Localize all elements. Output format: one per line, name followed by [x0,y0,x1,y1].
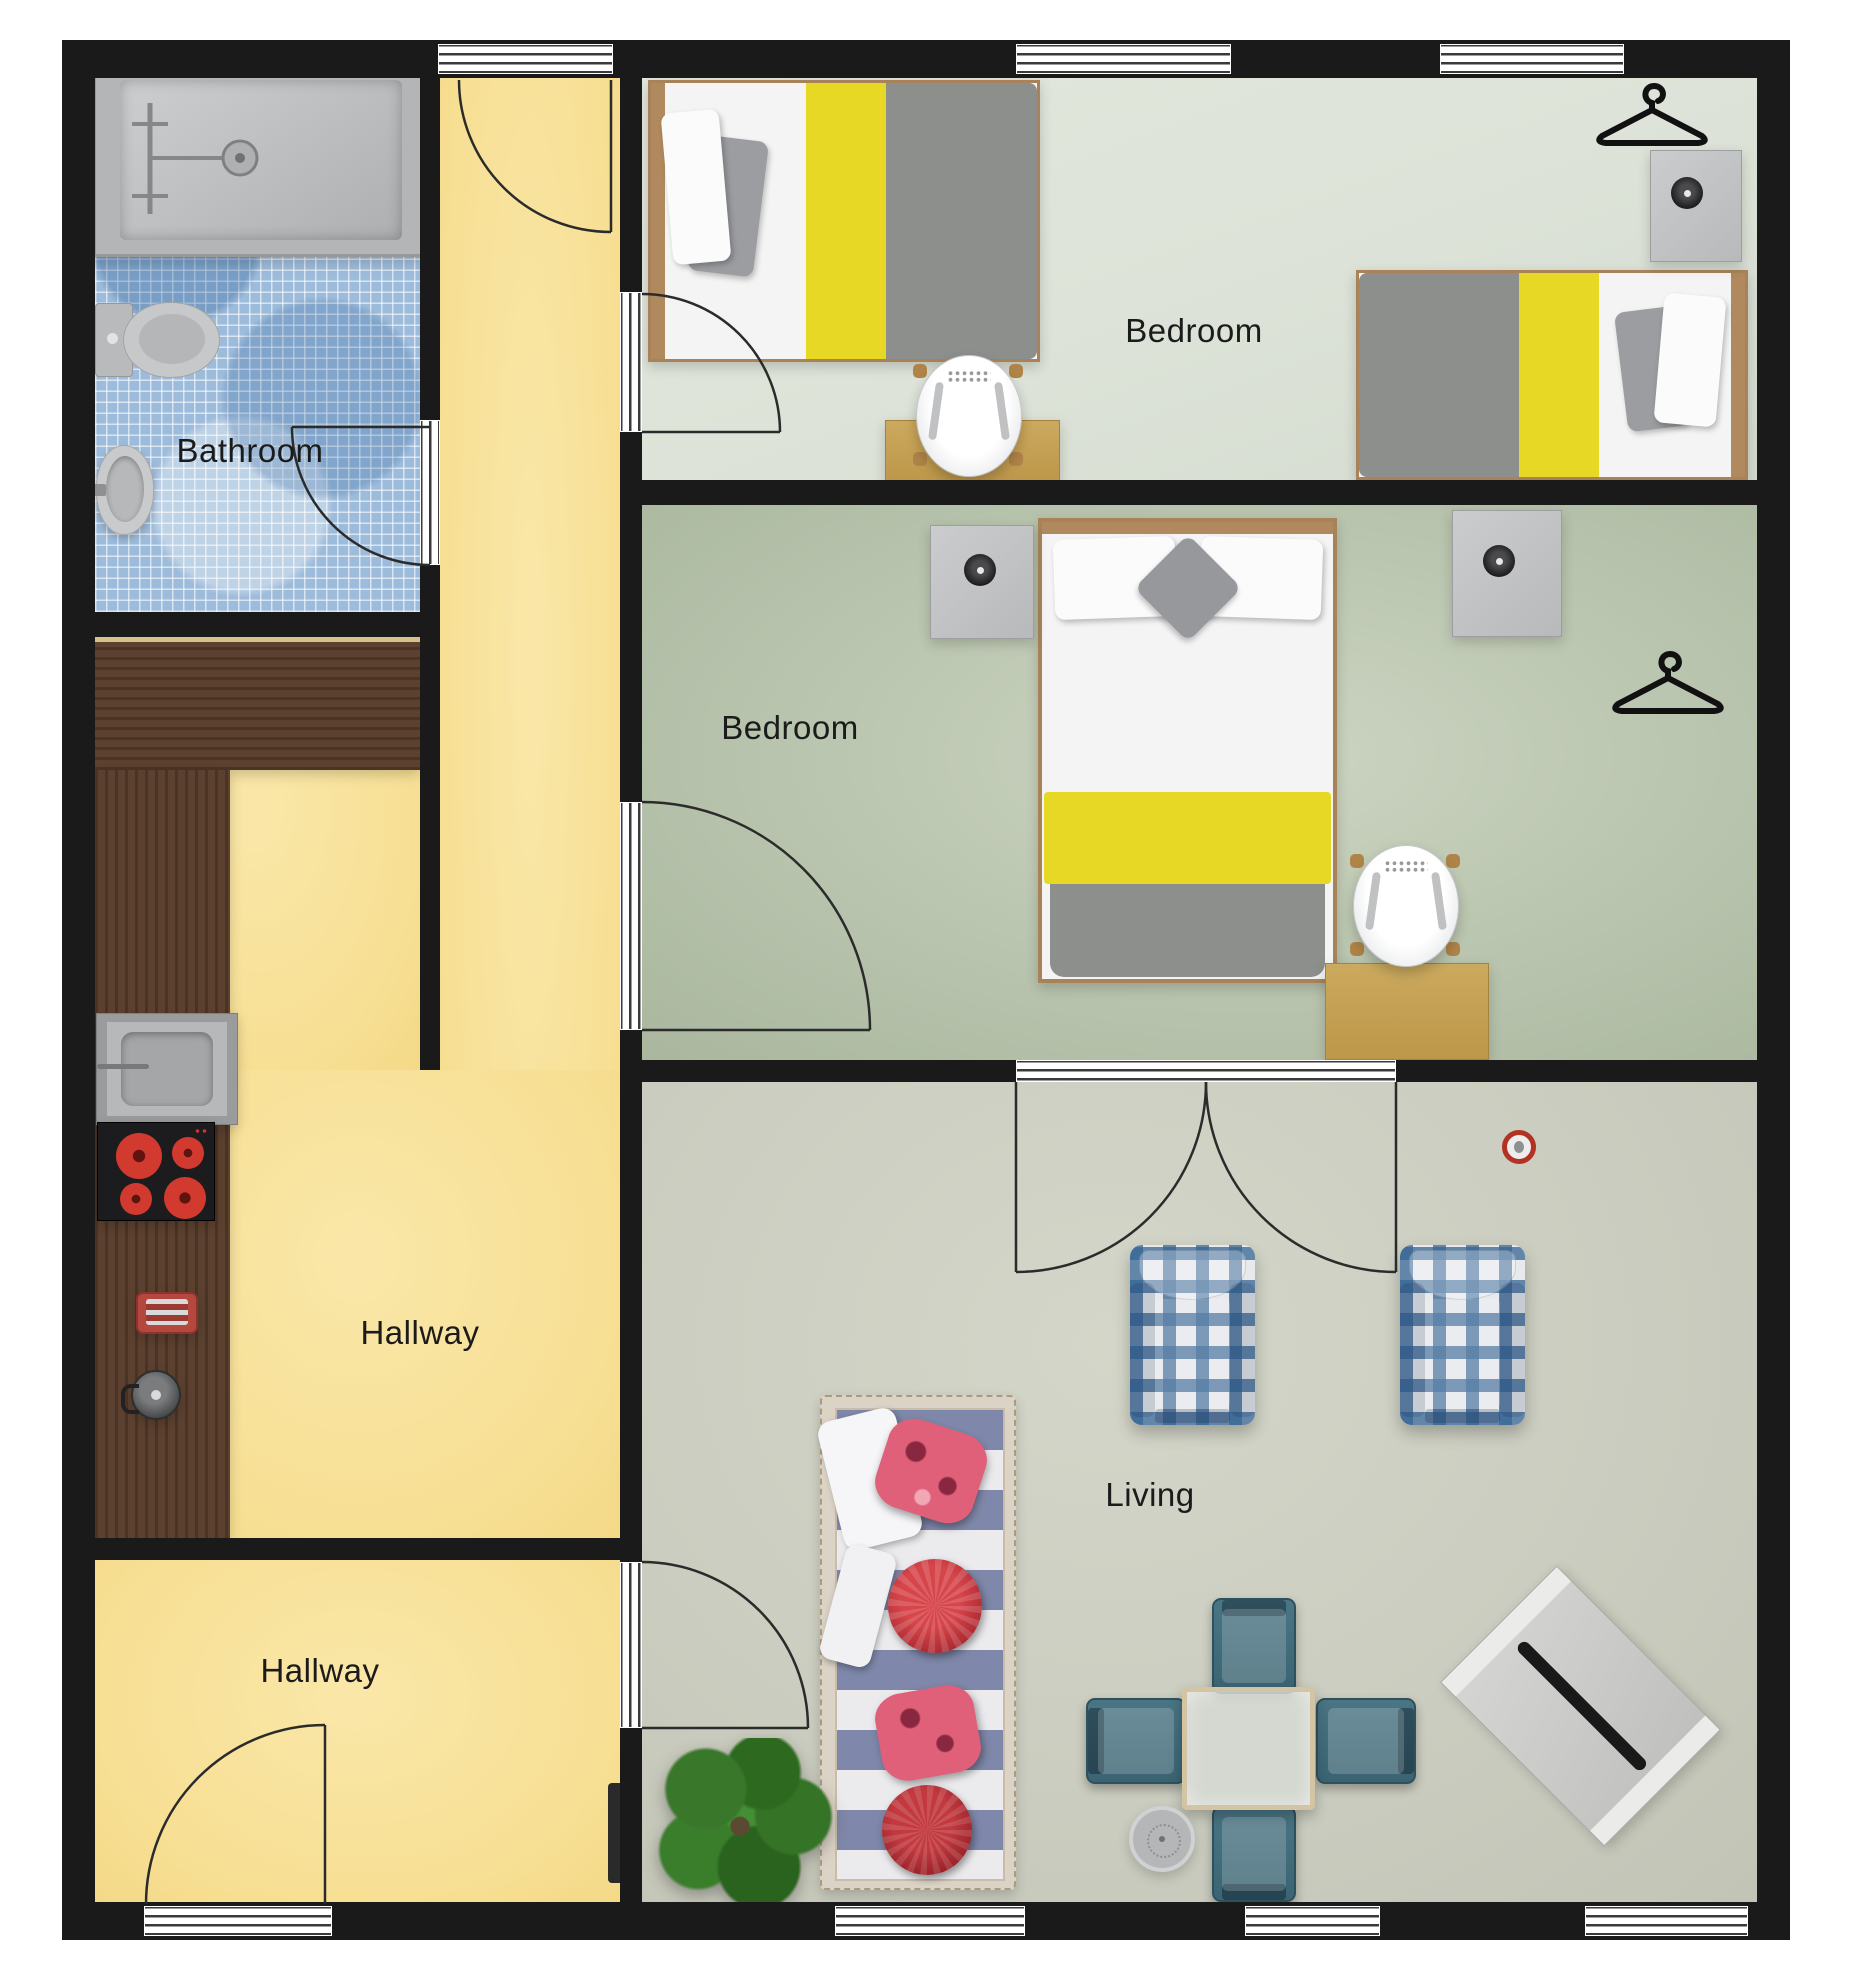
sofa-pillow-red-round [882,1785,972,1875]
window-top-corridor [438,44,613,74]
bed-accent-stripe [1519,273,1599,477]
round-side-table [1129,1806,1195,1872]
kettle-handle [121,1384,139,1414]
room-label-bedroom-middle: Bedroom [721,709,858,747]
room-label-hallway-entrance: Hallway [260,1652,379,1690]
kitchen-counter-top [95,637,420,770]
glazed-double-door [1016,1060,1396,1082]
chair-shell [916,355,1022,477]
window-bottom-living-c [1585,1906,1748,1936]
side-table-center [1159,1836,1165,1842]
living-door-leaf [620,1562,642,1728]
armchair-arm [1130,1283,1155,1417]
armchair-right [1400,1245,1525,1425]
armchair-seat [1425,1299,1500,1409]
armchair-left [1130,1245,1255,1425]
room-label-hallway-corridor: Hallway [360,1314,479,1352]
chair-pattern [1384,860,1428,873]
wall-outer-right [1757,40,1790,1940]
toilet [95,300,222,378]
burner-icon [120,1183,152,1215]
burner-icon [164,1177,206,1219]
dining-chair-east [1316,1698,1416,1784]
bed-pillow-white [1653,293,1726,428]
faucet-icon [94,484,106,496]
kettle-lid [151,1390,161,1400]
nightstand-left [930,525,1034,639]
toaster [136,1292,198,1334]
bed-blanket [1359,273,1519,477]
lamp-icon [1671,177,1703,209]
cooktop-controls [194,1128,208,1134]
sofa [820,1395,1016,1890]
wall-bathroom-bottom [62,612,440,637]
floor-plan: Bathroom Bedroom Bedroom Hallway Hallway… [0,0,1850,1969]
bed-headboard [1731,273,1745,477]
nightstand-right [1452,510,1562,637]
kettle [131,1370,181,1420]
double-bed [1038,518,1337,983]
bed-accent-stripe [806,83,886,359]
armchair-seat [1155,1299,1230,1409]
smoke-detector [1502,1130,1536,1164]
chair-shell [1353,845,1459,967]
bed-blanket [886,83,1037,359]
wash-basin [96,445,154,535]
lamp-icon [1483,545,1515,577]
armchair-arm [1230,1283,1255,1417]
armchair-arm [1400,1283,1425,1417]
nightstand [1650,150,1742,262]
sofa-pillow-red-round [888,1559,982,1653]
window-bottom-living-a [835,1906,1025,1936]
bathroom-door-leaf [420,420,440,565]
burner-icon [172,1137,204,1169]
toilet-flush-button [107,333,118,344]
dining-table [1182,1687,1315,1810]
entrance-door-leaf [144,1906,332,1936]
wall-bedrooms-divider [620,480,1757,505]
room-label-living: Living [1105,1476,1194,1514]
bedroom-middle-door-leaf [620,802,642,1030]
window-top-bedroom-b [1440,44,1624,74]
desk-chair [916,355,1020,475]
bed-headboard [1042,522,1333,534]
kitchen-faucet-icon [97,1064,149,1069]
chair-pattern [947,370,991,383]
bedroom-top-door-leaf [620,292,642,432]
dining-chair-north [1212,1598,1296,1694]
wall-bathroom-right [420,78,440,1070]
kitchen-sink-basin [121,1032,213,1106]
armchair-front [1155,1409,1230,1423]
room-label-bedroom-top: Bedroom [1125,312,1262,350]
desk-chair [1353,845,1457,965]
lamp-icon [964,554,996,586]
bed-blanket [1050,884,1325,977]
desk [1325,963,1489,1060]
hallway-entrance-floor [95,1560,620,1902]
window-bottom-living-b [1245,1906,1380,1936]
window-top-bedroom-a [1016,44,1231,74]
wash-basin-bowl [106,456,144,522]
dining-chair-south [1212,1806,1296,1902]
burner-icon [116,1133,162,1179]
armchair-front [1425,1409,1500,1423]
toaster-slots [146,1299,188,1325]
potted-plant [645,1738,835,1908]
bathtub [93,63,423,257]
armchair-arm [1500,1283,1525,1417]
bed-accent-stripe [1044,792,1331,884]
room-label-bathroom: Bathroom [176,432,323,470]
bed-pillow-white [660,109,731,265]
bench-black-bar [1515,1639,1649,1773]
dining-chair-west [1086,1698,1186,1784]
single-bed-left [648,80,1040,362]
single-bed-right [1356,270,1748,480]
wall-outer-left [62,40,95,1940]
wall-entrance-hall-top [62,1538,642,1560]
toilet-seat [139,314,205,364]
cooktop [97,1122,215,1221]
kitchen-sink [96,1013,238,1125]
bathtub-basin [120,80,402,240]
